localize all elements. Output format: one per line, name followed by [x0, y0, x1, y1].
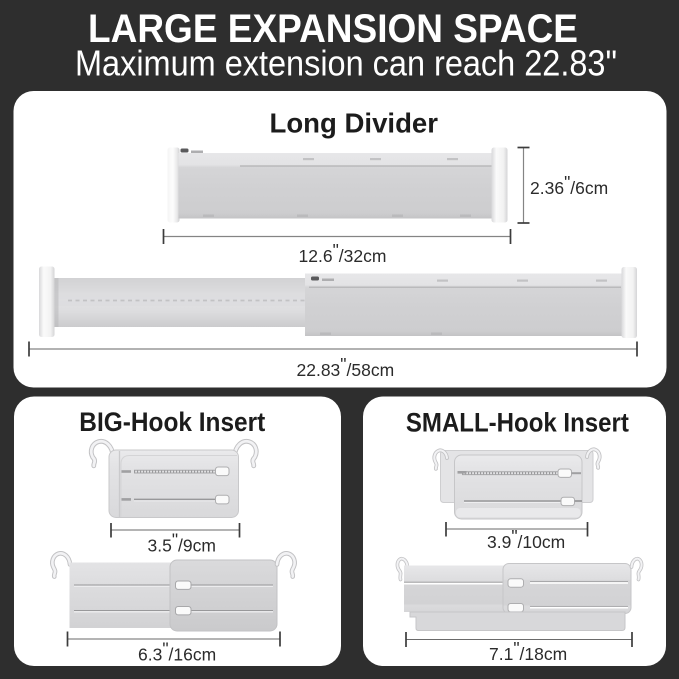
svg-text:Maximum extension can reach 22: Maximum extension can reach 22.83"	[75, 43, 617, 84]
svg-text:BIG-Hook Insert: BIG-Hook Insert	[79, 407, 265, 437]
svg-text:SMALL-Hook Insert: SMALL-Hook Insert	[406, 408, 629, 438]
svg-text:Long Divider: Long Divider	[270, 108, 439, 139]
